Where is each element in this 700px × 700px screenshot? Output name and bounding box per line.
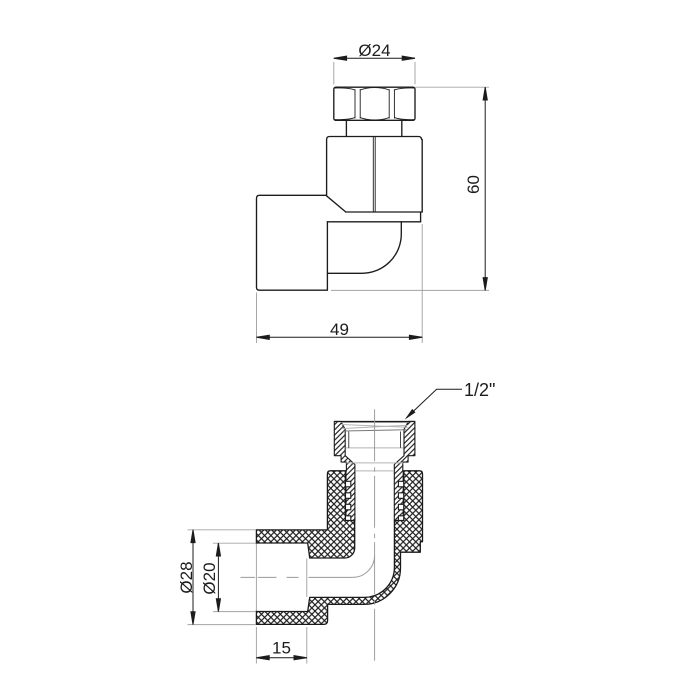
svg-text:49: 49 <box>330 320 349 339</box>
svg-text:Ø28: Ø28 <box>177 561 196 593</box>
svg-text:60: 60 <box>464 175 483 194</box>
svg-text:Ø24: Ø24 <box>358 41 390 60</box>
svg-text:Ø20: Ø20 <box>200 562 219 594</box>
svg-text:15: 15 <box>272 639 291 658</box>
svg-text:1/2": 1/2" <box>464 380 495 400</box>
